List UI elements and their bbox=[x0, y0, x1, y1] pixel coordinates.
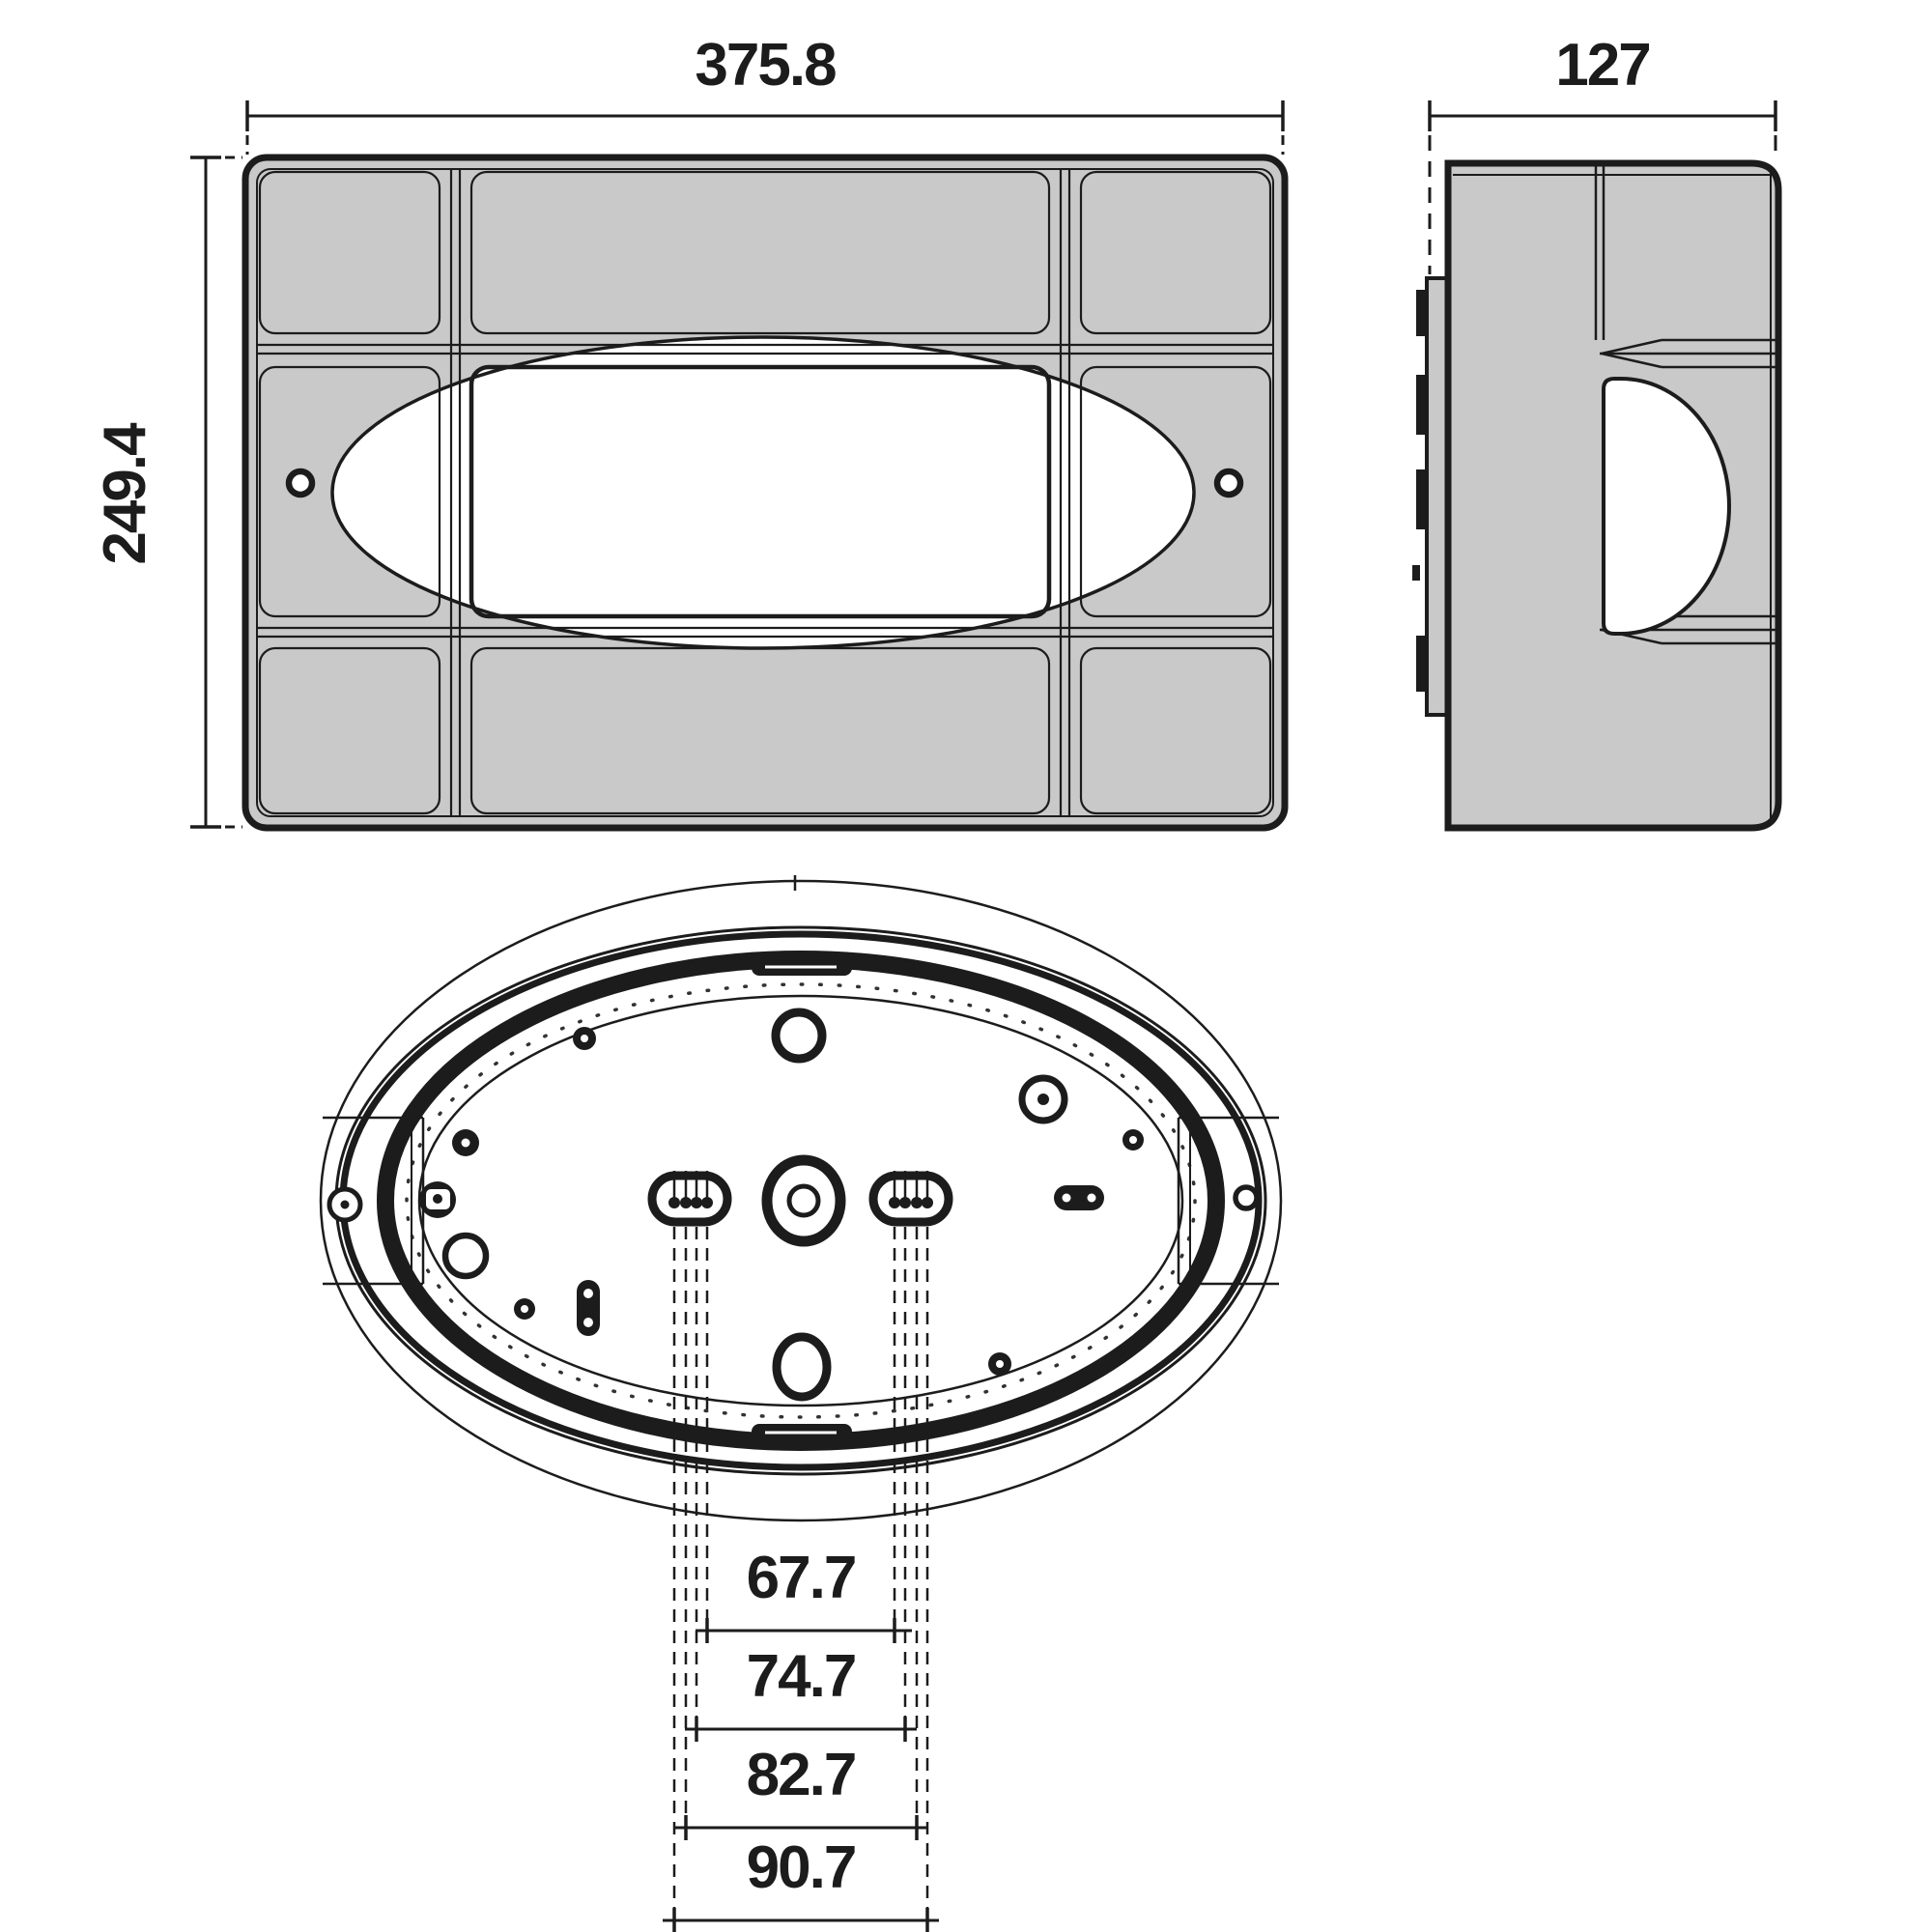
cable-grommet bbox=[767, 1160, 840, 1241]
fixing-hole-bottom bbox=[777, 1337, 827, 1397]
dimension-drawing: 375.8 249.4 127 67.7 74.7 82.7 bbox=[0, 0, 1932, 1932]
dim-slot-spacing-4: 90.7 bbox=[663, 1834, 939, 1932]
dim-front-width: 375.8 bbox=[247, 32, 1283, 155]
dim-slot-spacing-3: 82.7 bbox=[674, 1742, 928, 1840]
dim-front-height: 249.4 bbox=[92, 157, 242, 827]
dim-slot-spacing-1: 67.7 bbox=[696, 1545, 912, 1643]
link-slot-horizontal bbox=[1054, 1185, 1104, 1210]
latch-eyelet-left-pin bbox=[341, 1201, 350, 1209]
dim-slot-spacing-2-label: 74.7 bbox=[747, 1643, 856, 1710]
latch-eyelet-right bbox=[1236, 1187, 1257, 1208]
dim-slot-spacing-4-label: 90.7 bbox=[747, 1834, 856, 1901]
dim-slot-spacing-1-label: 67.7 bbox=[747, 1545, 856, 1611]
back-details-right bbox=[988, 1078, 1144, 1376]
front-screw-hole-right bbox=[1217, 471, 1240, 495]
dim-slot-spacing-3-label: 82.7 bbox=[747, 1742, 856, 1808]
mounting-slot-left bbox=[652, 1171, 727, 1222]
dim-slot-spacing-2: 74.7 bbox=[685, 1643, 917, 1742]
drawing-canvas: 375.8 249.4 127 67.7 74.7 82.7 bbox=[0, 0, 1932, 1932]
dim-front-height-label: 249.4 bbox=[92, 422, 158, 565]
fixing-hole-top bbox=[776, 1012, 822, 1059]
front-view bbox=[245, 157, 1285, 828]
mounting-slot-right bbox=[873, 1171, 949, 1222]
center-panel-fill bbox=[471, 367, 1049, 616]
front-screw-hole-left bbox=[289, 471, 312, 495]
dim-front-width-label: 375.8 bbox=[695, 32, 836, 99]
dim-side-depth-label: 127 bbox=[1555, 32, 1649, 99]
cable-entry-left bbox=[445, 1236, 486, 1276]
side-view bbox=[1412, 163, 1778, 828]
link-slot-vertical bbox=[577, 1280, 600, 1336]
